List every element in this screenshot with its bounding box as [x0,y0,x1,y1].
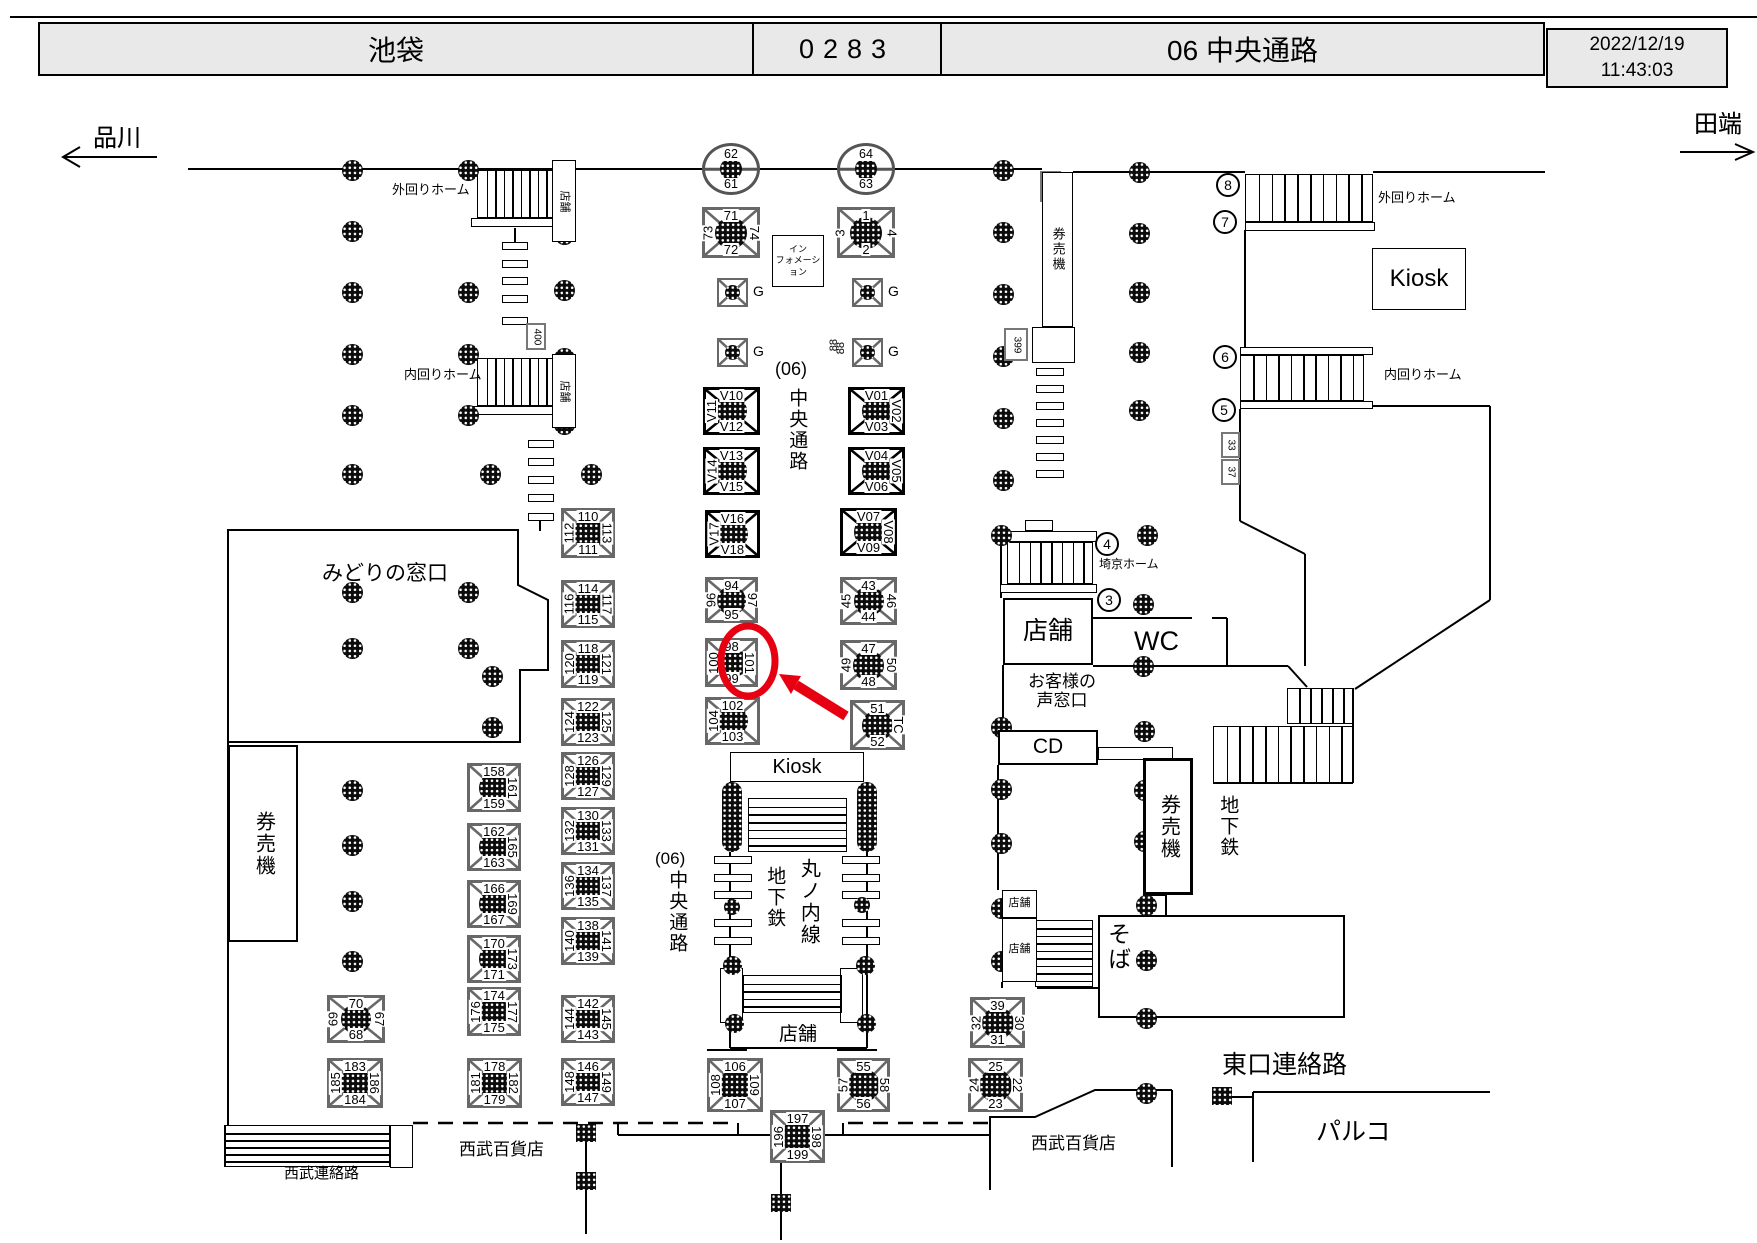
g-label: G [888,344,899,360]
dash-mark [842,874,880,882]
stairs [225,1125,390,1167]
equipment-number: 135 [576,895,600,908]
area-label: (06) [775,359,807,379]
time-text: 11:43:03 [1601,58,1674,84]
pillar [482,717,503,738]
equipment-number: 52 [869,735,885,748]
equipment-number: 104 [707,709,720,733]
pillar-square [576,1124,596,1142]
boxed-label: イン フォメーション [772,235,824,287]
dash-mark [842,856,880,864]
equipment-box-138: 138139140141 [561,917,615,965]
rotated-box-label: 400 [526,323,546,350]
pillar [1129,400,1150,421]
rotated-box-label: 399 [1004,328,1028,361]
equipment-number: 57 [836,1077,849,1093]
equipment-box-158: 158159161 [467,763,521,812]
dash-mark [502,260,528,268]
equipment-number: V17 [707,521,720,546]
equipment-number: 145 [600,1007,613,1031]
equipment-number: 123 [576,731,600,744]
equipment-box-G [717,338,748,367]
boxed-label: Kiosk [730,752,864,782]
pillar [993,408,1014,429]
equipment-number: 45 [839,593,852,609]
equipment-box-V07: V07V09V08 [840,508,897,556]
pillar [342,835,363,856]
map-title: 06 中央通路 [942,24,1543,74]
stairs [477,170,554,218]
pillar [991,525,1012,546]
equipment-box-47: 47484950 [840,640,897,690]
wall-bar [1000,584,1097,593]
equipment-box-118: 118119120121 [561,640,615,688]
area-label: WC [1134,626,1179,656]
area-label: 東口連絡路 [1222,1051,1347,1079]
pillar [723,956,742,975]
equipment-number: V11 [705,399,718,423]
area-label: 内回りホーム [1384,368,1462,383]
pillar [342,891,363,912]
dash-mark [1036,470,1064,478]
equipment-number: 183 [343,1060,367,1073]
boxed-label: 券売機 [1143,758,1193,895]
equipment-box-102: 102103104 [705,697,760,745]
stairs [477,358,554,406]
wall-bar [471,406,556,415]
equipment-number: V18 [720,543,745,556]
dash-mark [1036,385,1064,393]
pillar-small [724,899,740,915]
pillar [725,1014,744,1033]
equipment-number: V05 [890,458,903,483]
area-label: (06) [655,849,685,868]
area-label: 外回りホーム [1378,191,1456,206]
equipment-number: 25 [987,1060,1003,1073]
g-label: G [753,344,764,360]
equipment-number: 48 [860,675,876,688]
equipment-number: 141 [600,929,613,953]
pillar [458,282,479,303]
platform-number-5: 5 [1212,398,1236,422]
equipment-number: 162 [482,825,506,838]
equipment-number: 51 [869,702,885,715]
pillar [993,222,1014,243]
equipment-number: 39 [989,999,1005,1012]
equipment-number: 70 [348,997,364,1010]
wall-bar [390,1125,413,1168]
pillar [1134,721,1155,742]
equipment-number: 142 [576,997,600,1010]
area-label: 田端 [1694,112,1742,139]
equipment-number: 125 [600,710,613,734]
equipment-number: V12 [719,420,744,433]
dash-mark [528,440,554,448]
stairs [1240,355,1364,401]
area-label: 地下鉄 [764,866,785,929]
boxed-label: 店舗 [1002,890,1037,918]
wall-bar [1025,520,1053,531]
equipment-box-130: 130131132133 [561,807,615,855]
area-label: 中央通路 [666,870,687,954]
pillar-oval [857,782,877,852]
platform-number-4: 4 [1095,532,1119,556]
equipment-number: 4 [885,228,898,237]
dash-mark [502,317,528,325]
dash-mark [714,937,752,945]
equipment-number: 94 [723,579,739,592]
pillar-small [854,897,870,913]
timestamp-box: 2022/12/19 11:43:03 [1546,28,1728,88]
g-label: G [888,284,899,300]
equipment-number: 67 [373,1011,386,1027]
equipment-box-98: 9899100101 [705,638,758,687]
equipment-box-G [852,278,883,307]
rotated-box-label: 37 [1221,459,1240,485]
equipment-number: 163 [482,856,506,869]
pillar [342,951,363,972]
equipment-box-V13: V13V15V14 [703,447,760,495]
pillar [458,638,479,659]
wall-bar [1240,347,1373,355]
equipment-number: 158 [482,765,506,778]
equipment-box-134: 134135136137 [561,862,615,910]
equipment-number: 55 [855,1060,871,1073]
stairs [743,975,842,1013]
pillar [342,780,363,801]
equipment-box-39: 39313230 [970,997,1025,1048]
area-label: 西武連絡路 [284,1166,359,1183]
equipment-box-126: 126127128129 [561,752,615,800]
g-label: G [753,284,764,300]
equipment-box-110: 110111112113 [561,508,615,558]
equipment-number: 74 [748,224,761,240]
pillar [1129,282,1150,303]
rotated-box-label: 店舗 [552,354,576,428]
equipment-number: 171 [482,968,506,981]
pillar [993,160,1014,181]
dash-mark [714,874,752,882]
dash-mark [502,295,528,303]
equipment-box-106: 106107108109 [707,1058,763,1112]
area-label: 内回りホーム [404,368,482,383]
equipment-number: 24 [967,1077,980,1093]
equipment-number: 3 [834,228,847,237]
equipment-number: 46 [885,593,898,609]
equipment-box-162: 162163165 [467,823,521,871]
dash-mark [842,937,880,945]
equipment-number: 56 [855,1097,871,1110]
equipment-box-71: 71727374 [702,207,760,258]
dash-mark [1036,436,1064,444]
equipment-number: 143 [576,1028,600,1041]
equipment-number: 69 [326,1011,339,1027]
equipment-box-51: 5152TC [850,700,905,750]
equipment-number: 32 [969,1014,982,1030]
equipment-number: 115 [577,613,600,626]
equipment-number: 71 [723,209,739,222]
equipment-number: 126 [576,754,600,767]
pillar [342,638,363,659]
equipment-number: 182 [507,1071,520,1095]
equipment-number: 97 [746,592,759,608]
platform-number-6: 6 [1213,345,1237,369]
equipment-number: 129 [600,764,613,788]
equipment-number: V09 [856,541,881,554]
equipment-box-178: 178179181182 [467,1058,522,1108]
equipment-box-V10: V10V12V11 [703,387,760,435]
equipment-number: 49 [839,657,852,673]
equipment-box-G [717,278,748,307]
equipment-number: 147 [576,1091,600,1104]
pillar [342,160,363,181]
equipment-number: 30 [1013,1014,1026,1030]
equipment-box-43: 43444546 [840,577,897,625]
pillar [1129,162,1150,183]
equipment-box-114: 114115116117 [561,580,615,628]
wall-bar [840,968,863,1023]
stairs [748,798,847,852]
equipment-number: 128 [563,764,576,788]
equipment-box-174: 174175176177 [467,987,521,1036]
dash-mark [1036,402,1064,410]
wall-bar [471,218,556,227]
equipment-number: 122 [576,700,600,713]
station-map-canvas: 池袋 0283 06 中央通路 2022/12/19 11:43:03 品川 田… [0,0,1757,1243]
area-label: 丸ノ内線 [797,858,819,946]
equipment-number: 176 [469,1000,482,1024]
equipment-number: 96 [704,592,717,608]
pillar [581,464,602,485]
equipment-box-G [852,338,883,367]
equipment-number: 72 [723,243,739,256]
equipment-box-170: 170171173 [467,935,521,983]
pillar [1129,342,1150,363]
equipment-number: 131 [576,840,600,853]
equipment-number: V04 [864,449,889,462]
area-label: 外回りホーム [392,183,470,198]
equipment-number: V15 [719,480,744,493]
equipment-number: 102 [721,699,745,712]
equipment-number: 133 [600,819,613,843]
dash-mark [1036,453,1064,461]
equipment-box-183: 183184185186 [327,1058,383,1108]
equipment-number: 169 [506,892,519,916]
equipment-number: V07 [856,510,881,523]
pillar [993,470,1014,491]
equipment-number: V03 [864,420,889,433]
equipment-box-146: 146147148149 [561,1058,615,1106]
platform-number-8: 8 [1216,173,1240,197]
equipment-number: V06 [864,480,889,493]
equipment-number: 144 [563,1007,576,1031]
equipment-number: 138 [576,919,600,932]
equipment-number: V13 [719,449,744,462]
dash-mark-checkered [714,919,752,927]
wall-bar [1000,531,1097,542]
equipment-number: 107 [723,1097,747,1110]
stairs [1245,174,1373,222]
dash-mark [502,277,528,285]
pillar [1136,950,1157,971]
pillar [342,344,363,365]
equipment-number: 121 [600,652,613,676]
equipment-number: 101 [743,651,756,675]
equipment-number: 186 [368,1071,381,1095]
equipment-number: 127 [576,785,600,798]
pillar [1133,656,1154,677]
equipment-number: 139 [576,950,600,963]
equipment-number: 199 [786,1148,810,1161]
equipment-number: 108 [709,1073,722,1097]
equipment-number: 161 [506,776,519,800]
equipment-box-94: 94959697 [705,577,758,623]
equipment-number: 197 [786,1112,810,1125]
wall-bar [1245,222,1375,231]
equipment-number: 98 [723,640,739,653]
equipment-number: 173 [506,947,519,971]
station-name: 池袋 [40,24,754,74]
dash-mark [502,242,528,250]
area-label: みどりの窓口 [322,562,448,586]
equipment-number: 119 [577,673,600,686]
pillar [342,405,363,426]
equipment-box-166: 166167169 [467,880,521,928]
rotated-box-label: 店舗 [552,160,576,242]
equipment-number: 112 [562,522,575,545]
equipment-number: 110 [577,510,600,523]
equipment-box-V04: V04V06V05 [848,447,905,495]
boxed-label: 券売機 [1042,172,1073,327]
equipment-box-V01: V01V03V02 [848,387,905,435]
equipment-number: V14 [705,458,718,483]
equipment-number: 174 [482,989,506,1002]
equipment-number: 118 [577,642,600,655]
pillar [1136,895,1157,916]
equipment-number: 47 [860,642,876,655]
boxed-label: 店舗 [1002,918,1037,982]
equipment-number: 99 [723,672,739,685]
dash-mark-checkered [842,919,880,927]
equipment-number: 179 [483,1093,507,1106]
stairs [1035,920,1093,987]
pillar [458,582,479,603]
equipment-number: V08 [882,519,895,544]
equipment-number: 148 [563,1070,576,1094]
equipment-number: 175 [482,1021,506,1034]
equipment-number: 44 [860,610,876,623]
pillar [342,464,363,485]
equipment-number: 165 [506,835,519,859]
equipment-number: 103 [721,730,745,743]
equipment-number: TC [892,715,905,734]
equipment-box-55: 55565758 [837,1058,890,1112]
pillar [856,956,875,975]
area-label: 西武百貨店 [459,1140,544,1159]
area-label: パルコ [1316,1118,1391,1146]
pillar [993,284,1014,305]
equipment-number: 170 [482,937,506,950]
equipment-number: 113 [601,522,614,545]
pillar [1129,223,1150,244]
equipment-number: 58 [878,1077,891,1093]
pillar [1136,1083,1157,1104]
pillar [458,344,479,365]
wall-bar [1240,401,1373,409]
stairs [1007,542,1093,584]
pillar [1133,594,1154,615]
pillar-square [771,1194,791,1212]
pillar-square [576,1172,596,1190]
equipment-number: 177 [506,1000,519,1024]
equipment-number: 136 [563,874,576,898]
area-label: お客様の 声窓口 [1014,672,1110,710]
boxed-label: CD [998,730,1098,765]
equipment-number: V16 [720,512,745,525]
equipment-number: 132 [563,819,576,843]
equipment-number: 116 [562,593,575,616]
header-bar: 池袋 0283 06 中央通路 [38,22,1545,76]
area-label: 西武百貨店 [1031,1134,1116,1153]
equipment-number: 106 [723,1060,747,1073]
equipment-number: 95 [723,608,739,621]
equipment-number: 23 [987,1097,1003,1110]
platform-number-3: 3 [1097,588,1121,612]
pillar [991,779,1012,800]
equipment-number: 130 [576,809,600,822]
equipment-box-142: 142143144145 [561,995,615,1043]
equipment-number: 185 [329,1071,342,1095]
equipment-number: 111 [577,543,599,556]
boxed-label: 店舗 [1003,598,1093,665]
equipment-number: 134 [576,864,600,877]
platform-number-7: 7 [1213,210,1237,234]
date-text: 2022/12/19 [1589,32,1684,58]
equipment-box-197: 197199196198 [770,1110,825,1163]
equipment-number: 117 [601,593,614,616]
pillar-oval [722,782,742,852]
map-code: 0283 [754,24,942,74]
equipment-number: 196 [772,1125,785,1149]
area-label: そば [1104,922,1130,972]
dash-mark [528,458,554,466]
equipment-number: 184 [343,1093,367,1106]
equipment-number: 1 [861,209,870,222]
dash-mark [1036,368,1064,376]
pillar [1137,525,1158,546]
area-label: 品川 [93,126,141,153]
equipment-number: 146 [576,1060,600,1073]
dash-mark [528,513,554,521]
equipment-number: 124 [563,710,576,734]
wall-bar [1032,327,1075,363]
pillar [458,160,479,181]
dash-mark [528,476,554,484]
equipment-number: 100 [707,651,720,675]
equipment-number: 68 [348,1028,364,1041]
equipment-number: 198 [810,1125,823,1149]
equipment-number: 31 [989,1033,1005,1046]
dash-mark [714,856,752,864]
equipment-number: 50 [885,657,898,673]
pillar [991,833,1012,854]
pillar [342,221,363,242]
area-label: 地下鉄 [1217,795,1238,858]
equipment-box-122: 122123124125 [561,698,615,746]
equipment-number: 159 [482,797,506,810]
equipment-number: 181 [469,1071,482,1095]
equipment-number: 2 [861,243,870,256]
